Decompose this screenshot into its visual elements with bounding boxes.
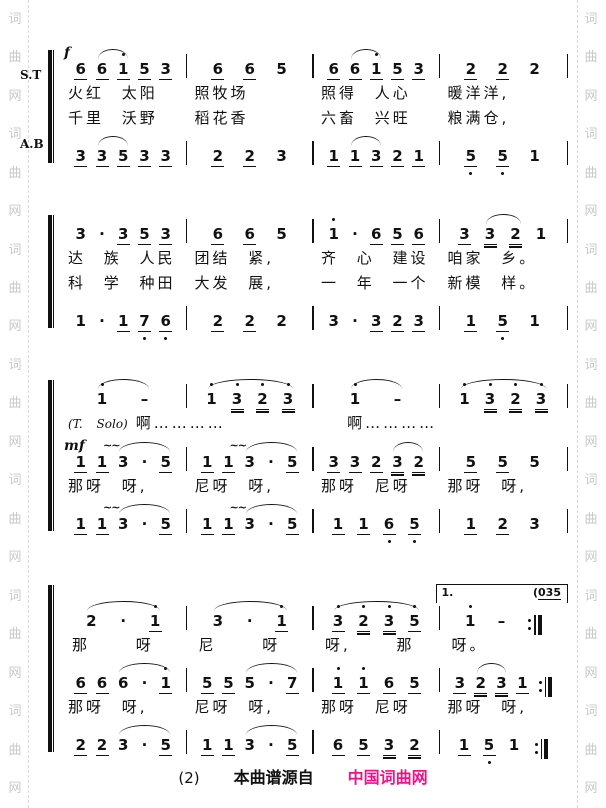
measure: 33533 — [60, 146, 187, 167]
note-token: 6 — [159, 311, 172, 332]
lyric-cell: 六畜 兴旺 — [313, 108, 440, 128]
octave-dot-below — [469, 172, 472, 175]
lyric-cell: 团结 紧, — [187, 248, 314, 268]
note-token: 5 — [159, 514, 172, 535]
note-token: 5 — [117, 146, 130, 167]
slur-arc — [393, 442, 423, 452]
note-token: 3 — [458, 224, 471, 245]
note-token: 1 — [516, 673, 529, 694]
note-token: 5 — [138, 224, 151, 245]
note-token: · — [138, 452, 151, 472]
lyric-cell: 咱家 乡。 — [440, 248, 567, 268]
note-token: · — [117, 611, 130, 631]
measure: 223 — [187, 146, 314, 167]
note-token: 1 — [275, 611, 288, 632]
note-token: · — [96, 224, 109, 244]
note-token: 3 — [74, 224, 87, 244]
note-token: 3 — [332, 611, 345, 632]
watermark-char: 词 — [8, 474, 21, 487]
lyric-cell: 新模 样。 — [440, 273, 567, 293]
slur-arc — [119, 442, 170, 452]
note-token: 3 — [383, 735, 396, 756]
sheet-music-page: 词曲网词曲网词曲网词曲网词曲网词曲网词曲网 词曲网词曲网词曲网词曲网词曲网词曲网… — [0, 0, 606, 808]
watermark-char: 曲 — [584, 167, 597, 180]
octave-dot-above — [362, 667, 365, 670]
lyrics-row: 科 学 种田大发 展,一 年 一个新模 样。 — [60, 273, 566, 293]
watermark-left: 词曲网词曲网词曲网词曲网词曲网词曲网词曲网 — [2, 0, 29, 808]
solo-label: (T. Solo) — [68, 417, 128, 431]
watermark-char: 词 — [8, 244, 21, 257]
lyric-cell: 那呀 呀, — [440, 476, 567, 496]
lyric-cell: 那呀 呀, — [60, 697, 187, 717]
note-token: 2 — [528, 59, 541, 79]
brand-link[interactable]: 中国词曲网 — [348, 764, 428, 788]
slur-arc — [214, 601, 287, 611]
system-3: 1–13231–1323(T. Solo)啊…………啊…………113·5mf~~… — [60, 376, 566, 535]
measure: 151 — [440, 311, 567, 332]
note-token: 1 — [96, 514, 109, 535]
note-token: 1 — [96, 389, 109, 409]
note-token: 2 — [275, 311, 288, 331]
note-token: 5 — [159, 735, 172, 756]
note-token: 2 — [391, 146, 404, 167]
note-token: 2 — [370, 452, 383, 473]
note-token: 7 — [138, 311, 151, 332]
watermark-char: 曲 — [8, 51, 21, 64]
note-token: 1 — [74, 514, 87, 535]
watermark-char: 网 — [584, 205, 597, 218]
lyric-cell: 齐 心 建设 — [313, 248, 440, 268]
volta-label: 1. — [442, 586, 454, 599]
note-token: · — [349, 311, 362, 331]
measure: 555 — [440, 452, 567, 473]
measure: 222 — [187, 311, 314, 332]
note-token: 1 — [96, 452, 109, 473]
note-token: 1 — [458, 389, 471, 409]
measure: 151 — [440, 735, 567, 756]
note-token: 1 — [159, 673, 172, 694]
measure: 113·5~~ — [187, 514, 314, 535]
slur-arc — [246, 504, 297, 514]
note-token: 3 — [96, 146, 109, 167]
note-token: 3 — [327, 311, 340, 331]
note-token: 6 — [383, 673, 396, 694]
watermark-char: 词 — [584, 128, 597, 141]
watermark-char: 曲 — [8, 397, 21, 410]
note-token: 3 — [412, 311, 425, 332]
slur-arc — [246, 442, 297, 452]
note-token: 3 — [159, 59, 172, 80]
measure: 1323 — [187, 389, 314, 410]
note-token: 2 — [496, 514, 509, 535]
octave-dot-below — [501, 172, 504, 175]
lyric-cell: 科 学 种田 — [60, 273, 187, 293]
measure: 3·353 — [60, 224, 187, 245]
lyric-cell — [453, 413, 566, 434]
watermark-char: 网 — [8, 667, 21, 680]
measure: 665 — [187, 59, 314, 80]
note-token: 5 — [391, 59, 404, 80]
measure: 1165 — [313, 514, 440, 535]
note-token: 3 — [211, 611, 224, 631]
note-token: 2 — [408, 735, 421, 756]
note-token: 2 — [211, 311, 224, 332]
note-token: 3 — [117, 452, 130, 472]
measure: 66153f — [60, 59, 187, 80]
dynamic-mark: mf — [64, 438, 85, 454]
slur-arc — [351, 49, 381, 59]
watermark-char: 曲 — [584, 513, 597, 526]
note-token: 1 — [464, 611, 477, 631]
watermark-char: 曲 — [8, 744, 21, 757]
measure: 3231 — [440, 673, 567, 694]
note-token: 3 — [159, 146, 172, 167]
note-token: 3 — [453, 673, 466, 694]
note-token: 3 — [484, 224, 497, 245]
note-token: 3 — [138, 146, 151, 167]
note-token: 6 — [349, 59, 362, 80]
watermark-char: 词 — [584, 590, 597, 603]
note-token: 1 — [201, 452, 214, 473]
lyric-cell: 尼呀 呀, — [187, 697, 314, 717]
note-token: 1 — [205, 389, 218, 409]
measure: 1323 — [440, 389, 567, 410]
measure: 113·5 — [187, 735, 314, 756]
lyric-cell: 粮满仓, — [440, 108, 567, 128]
note-token: · — [349, 224, 362, 244]
slur-arc — [351, 136, 381, 146]
note-token: 3 — [117, 514, 130, 534]
measure: 223·5 — [60, 735, 187, 756]
note-token: 2 — [496, 59, 509, 80]
note-token: 5 — [528, 452, 541, 472]
note-token: 5 — [391, 224, 404, 245]
note-token: 5 — [408, 514, 421, 535]
note-token: 6 — [332, 735, 345, 756]
note-token: 3 — [243, 452, 256, 472]
note-token: 1 — [357, 673, 370, 694]
watermark-char: 词 — [584, 359, 597, 372]
slur-arc — [486, 214, 521, 224]
note-token: 3 — [412, 59, 425, 80]
page-number: (2) — [178, 769, 199, 787]
notes-row: 113·5mf~~113·5~~33232555 — [60, 439, 566, 473]
repeat-sign — [535, 739, 549, 759]
measure: 113·5~~ — [187, 452, 314, 473]
note-token: 6 — [96, 673, 109, 694]
watermark-char: 词 — [8, 13, 21, 26]
watermark-char: 曲 — [8, 282, 21, 295]
watermark-char: 曲 — [584, 744, 597, 757]
note-token: 3 — [495, 673, 508, 694]
note-token: 1 — [74, 311, 87, 331]
note-token: 3 — [349, 452, 362, 473]
measure: 6532 — [313, 735, 440, 756]
lyric-cell: 照牧场 — [187, 83, 314, 103]
note-token: 6 — [74, 59, 87, 80]
notes-row: 3353322311321551 — [60, 133, 566, 167]
lyrics-row: 那呀 呀,尼呀 呀,那呀 尼呀那呀 呀, — [60, 697, 566, 717]
slur-arc — [119, 504, 170, 514]
note-token: 5 — [357, 735, 370, 756]
measure: 666·1 — [60, 673, 187, 694]
slur-arc — [477, 663, 506, 673]
note-token: 3 — [243, 514, 256, 534]
note-token: 6 — [412, 224, 425, 245]
note-token: 1 — [201, 514, 214, 535]
note-token: 3 — [117, 224, 130, 245]
note-token: 1 — [74, 452, 87, 473]
watermark-char: 网 — [8, 90, 21, 103]
slur-arc — [87, 601, 160, 611]
note-token: 1 — [412, 146, 425, 167]
measure: 1·176 — [60, 311, 187, 332]
note-token: 2 — [96, 735, 109, 756]
volta-note: (035 — [533, 586, 561, 599]
watermark-char: 网 — [584, 320, 597, 333]
octave-dot-below — [143, 337, 146, 340]
note-token: 1 — [535, 224, 548, 244]
lyric-cell: 大发 展, — [187, 273, 314, 293]
note-token: 5 — [464, 452, 477, 473]
note-token: 7 — [286, 673, 299, 694]
octave-dot-above — [332, 218, 335, 221]
note-token: 3 — [275, 146, 288, 166]
measure: 113·5~~ — [60, 514, 187, 535]
note-token: 2 — [509, 389, 522, 410]
note-token: 1 — [464, 514, 477, 535]
watermark-char: 曲 — [8, 513, 21, 526]
slur-arc — [208, 379, 293, 389]
mordent-icon: ~~ — [103, 440, 119, 451]
lyric-cell: 那呀 呀, — [60, 476, 187, 496]
note-token: 6 — [243, 59, 256, 80]
note-token: · — [265, 673, 278, 693]
watermark-char: 网 — [8, 205, 21, 218]
repeat-sign — [539, 677, 553, 697]
note-token: 5 — [138, 59, 151, 80]
note-token: 6 — [96, 59, 109, 80]
note-token: 5 — [243, 673, 256, 693]
note-token: 2 — [85, 611, 98, 631]
note-token: 1 — [357, 514, 370, 535]
mordent-icon: ~~ — [230, 502, 246, 513]
lyric-cell: 尼 呀 — [187, 635, 314, 655]
lyric-cell: 一 年 一个 — [313, 273, 440, 293]
slur-arc — [351, 379, 402, 389]
slur-arc — [246, 725, 297, 735]
note-token: 6 — [370, 224, 383, 245]
watermark-char: 网 — [584, 436, 597, 449]
notes-row: 1·1762223·323151 — [60, 298, 566, 332]
lyric-cell: 那呀 尼呀 — [313, 697, 440, 717]
slur-arc — [334, 601, 419, 611]
octave-dot-above — [337, 667, 340, 670]
note-token: 1 — [508, 735, 521, 755]
slur-arc — [98, 379, 149, 389]
watermark-char: 词 — [584, 13, 597, 26]
measure: 113·5mf~~ — [60, 452, 187, 473]
note-token: – — [138, 389, 151, 409]
measure: 1– — [313, 389, 440, 410]
note-token: 1 — [222, 514, 235, 535]
octave-dot-below — [388, 540, 391, 543]
note-token: 1 — [349, 389, 362, 409]
watermark-char: 网 — [8, 436, 21, 449]
note-token: · — [138, 514, 151, 534]
slur-arc — [246, 663, 297, 673]
notes-row: 66153f66566153222 — [60, 46, 566, 80]
note-token: · — [96, 311, 109, 331]
note-token: 6 — [117, 673, 130, 693]
note-token: 5 — [483, 735, 496, 756]
watermark-char: 网 — [584, 667, 597, 680]
note-token: 2 — [243, 311, 256, 332]
system-1: S.TA.B66153f66566153222火红 太阳照牧场照得 人心暖洋洋,… — [60, 46, 566, 167]
watermark-char: 词 — [584, 244, 597, 257]
note-token: 6 — [211, 224, 224, 245]
lyric-cell: 那 呀 — [60, 635, 187, 655]
notes-row: 3·3536651·6563321 — [60, 211, 566, 245]
score: S.TA.B66153f66566153222火红 太阳照牧场照得 人心暖洋洋,… — [46, 0, 566, 757]
note-token: 3 — [231, 389, 244, 410]
octave-dot-below — [501, 337, 504, 340]
note-token: 1 — [464, 311, 477, 332]
note-token: 3 — [370, 146, 383, 167]
slur-arc — [461, 379, 546, 389]
note-token: 3 — [327, 452, 340, 473]
note-token: 5 — [464, 146, 477, 167]
mordent-icon: ~~ — [230, 440, 246, 451]
voice-label: A.B — [20, 137, 44, 151]
measure: 123 — [440, 514, 567, 535]
slur-arc — [119, 663, 170, 673]
note-token: 5 — [496, 452, 509, 473]
note-token: 2 — [412, 452, 425, 473]
note-token: 5 — [275, 59, 288, 79]
note-token: 5 — [201, 673, 214, 694]
note-token: 2 — [391, 311, 404, 332]
note-token: 5 — [408, 673, 421, 694]
note-token: 5 — [496, 146, 509, 167]
note-token: 3 — [117, 735, 130, 755]
lyric-cell: 尼呀 呀, — [187, 476, 314, 496]
watermark-char: 词 — [8, 705, 21, 718]
lyric-cell: (T. Solo)啊………… — [60, 413, 226, 434]
note-token: 1 — [327, 146, 340, 167]
measure: 222 — [440, 59, 567, 80]
measure: 665 — [187, 224, 314, 245]
watermark-char: 网 — [8, 551, 21, 564]
note-token: 5 — [222, 673, 235, 694]
lyrics-row: 火红 太阳照牧场照得 人心暖洋洋, — [60, 83, 566, 103]
note-token: 1 — [528, 146, 541, 166]
measure: 1– — [60, 389, 187, 410]
note-token: 1 — [528, 311, 541, 331]
note-token: 6 — [211, 59, 224, 80]
note-token: 1 — [117, 311, 130, 332]
measure: 3·1 — [187, 611, 314, 632]
measure: 555·7 — [187, 673, 314, 694]
note-token: 1 — [117, 59, 130, 80]
lyrics-row: (T. Solo)啊…………啊………… — [60, 413, 566, 434]
octave-dot-above — [469, 605, 472, 608]
note-token: 3 — [383, 611, 396, 632]
note-token: · — [243, 611, 256, 631]
footer: (2) 本曲谱源自 中国词曲网 — [0, 764, 606, 788]
note-token: 5 — [496, 311, 509, 332]
note-token: 3 — [528, 514, 541, 534]
measure: 3·323 — [313, 311, 440, 332]
slur-arc — [98, 49, 128, 59]
watermark-char: 词 — [8, 359, 21, 372]
note-token: · — [265, 735, 278, 755]
lyrics-row: 千里 沃野稻花香六畜 兴旺粮满仓, — [60, 108, 566, 128]
measure: 3321 — [440, 224, 567, 245]
lyric-cell: 照得 人心 — [313, 83, 440, 103]
notes-row: 2·13·132351.(0351– — [60, 581, 566, 632]
note-token: 1 — [222, 452, 235, 473]
note-token: 1 — [332, 673, 345, 694]
note-token: · — [265, 514, 278, 534]
note-token: 3 — [535, 389, 548, 410]
note-token: 1 — [332, 514, 345, 535]
volta-bracket: 1.(035 — [436, 584, 569, 603]
note-token: 3 — [159, 224, 172, 245]
watermark-char: 词 — [584, 705, 597, 718]
lyrics-row: 达 族 人民团结 紧,齐 心 建设咱家 乡。 — [60, 248, 566, 268]
lyric-cell: 那呀 尼呀 — [313, 476, 440, 496]
note-token: 5 — [159, 452, 172, 473]
lyrics-row: 那 呀尼 呀呀, 那呀。 — [60, 635, 566, 655]
mordent-icon: ~~ — [103, 502, 119, 513]
note-token: · — [265, 452, 278, 472]
watermark-char: 曲 — [584, 282, 597, 295]
lyric-cell: 啊………… — [339, 413, 452, 434]
note-token: 1 — [149, 611, 162, 632]
octave-dot-below — [164, 337, 167, 340]
watermark-char: 网 — [584, 90, 597, 103]
note-token: 6 — [327, 59, 340, 80]
measure: 33232 — [313, 452, 440, 473]
watermark-char: 词 — [8, 590, 21, 603]
note-token: 1 — [327, 224, 340, 244]
measure: 1·656 — [313, 224, 440, 245]
note-token: 6 — [383, 514, 396, 535]
note-token: 5 — [408, 611, 421, 632]
watermark-char: 曲 — [584, 51, 597, 64]
note-token: 2 — [211, 146, 224, 167]
note-token: 2 — [243, 146, 256, 167]
notes-row: 1–13231–1323 — [60, 376, 566, 410]
note-token: 6 — [243, 224, 256, 245]
lyric-cell: 千里 沃野 — [60, 108, 187, 128]
note-token: – — [495, 611, 508, 631]
note-token: · — [138, 673, 151, 693]
lyric-cell — [226, 413, 339, 434]
note-token: 2 — [509, 224, 522, 245]
lyrics-row: 那呀 呀,尼呀 呀,那呀 尼呀那呀 呀, — [60, 476, 566, 496]
measure: 3235 — [313, 611, 440, 632]
note-token: 5 — [286, 452, 299, 473]
note-token: 2 — [357, 611, 370, 632]
note-token: 3 — [74, 146, 87, 167]
note-token: 2 — [74, 735, 87, 756]
notes-row: 113·5~~113·5~~1165123 — [60, 501, 566, 535]
watermark-char: 曲 — [584, 397, 597, 410]
lyric-cell: 呀, 那 — [313, 635, 440, 655]
watermark-char: 词 — [584, 474, 597, 487]
